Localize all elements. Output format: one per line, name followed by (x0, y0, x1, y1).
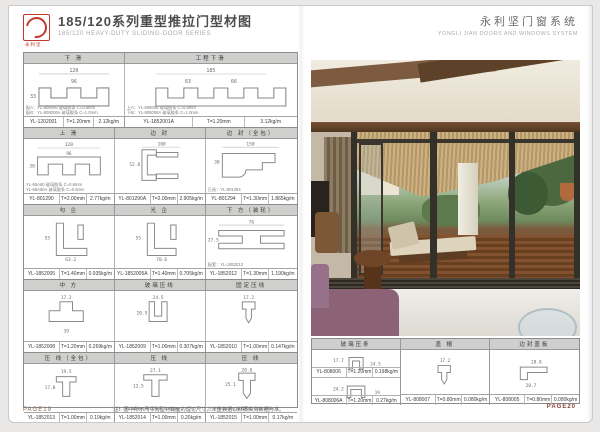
room-photo (311, 60, 581, 336)
profile-weight: 0.27kg/m (373, 396, 399, 405)
page-right: 永利坚门窗系统 YONGLI JIAN DOORS AND WINDOWS SY… (301, 6, 593, 422)
profile-table-right: 玻璃压条 盖 帽 边封盖板 17.7 24.5 YL-808006 T=1.20 (311, 338, 581, 404)
svg-text:66: 66 (231, 79, 237, 85)
band-header-cell: 玻璃压条 (312, 339, 401, 349)
profile-drawing: 20.6 25.1 注：YL-80/707 玻璃胶条 C=0.5mm (206, 364, 297, 412)
brand-title: 永利坚门窗系统 (438, 16, 578, 29)
profile-model: YL-1852005A (115, 269, 151, 279)
page-edge-shadow (587, 6, 592, 422)
page-subtitle: 185/120 HEAVY-DUTY SLIDING-DOOR SERIES (58, 31, 252, 37)
profile-weight: 0.20kg/m (178, 413, 205, 423)
profile-drawing: 17.2 (206, 291, 297, 341)
profile-drawing: 17.2 39 (24, 291, 115, 341)
profile-drawing: 150 30 已选：YL-801294 (206, 139, 297, 193)
profile-thickness: T=1.00mm (151, 413, 178, 423)
sliding-door-frame (351, 132, 357, 289)
profile-thickness: T=1.20mm (64, 117, 94, 127)
sliding-door-frame (509, 132, 515, 289)
profile-weight: 0.705kg/m (178, 269, 205, 279)
profile-model: YL-808006A (312, 396, 347, 405)
profile-drawing: 185 63 66 上A：YL-808008 玻璃胶条 C=0.8mm 下B：Y… (125, 64, 297, 116)
svg-text:27.5: 27.5 (207, 237, 218, 243)
profile-thickness: T=1.20mm (193, 117, 245, 127)
profile-column: 17.2 YL-808007 T=0.80mm 0.080kg/m (401, 350, 490, 405)
profile-thickness: T=2.00mm (60, 194, 87, 204)
profile-model: YL-1852012 (206, 269, 242, 279)
profile-model: YL-801290A (115, 194, 151, 204)
profile-weight: 0.307kg/m (178, 342, 205, 352)
band-header-cell: 中 方 (24, 280, 115, 290)
profile-drawing: 120 96 33 配A：YL-808006 玻璃胶条 C=0.8mm 配B：Y… (24, 64, 125, 116)
logo-label: 永利坚 (25, 42, 42, 48)
svg-text:30: 30 (29, 164, 35, 170)
svg-text:76: 76 (248, 219, 254, 225)
svg-text:28.8: 28.8 (531, 360, 542, 366)
svg-text:63: 63 (185, 79, 191, 85)
band-header-cell: 压 线 (115, 353, 206, 363)
svg-text:17.7: 17.7 (333, 358, 344, 364)
page-number-left: PAGE19 (23, 407, 52, 413)
page-left: 永利坚 185/120系列重型推拉门型材图 185/120 HEAVY-DUTY… (9, 6, 301, 422)
svg-text:185: 185 (206, 68, 215, 74)
profile-column: 17.7 24.5 YL-808006 T=1.20mm 0.198kg/m 2… (312, 350, 401, 405)
profile-drawing: 76 27.5 配套：YL-1852012 (206, 216, 297, 268)
profile-model: YL-808007 (401, 395, 436, 405)
profile-thickness: T=1.30mm (242, 194, 269, 204)
svg-text:24.2: 24.2 (333, 386, 344, 392)
wood-drum-table (315, 212, 339, 253)
drawing-notes: 配A：YL-808006 玻璃胶条 C=0.8mm 配B：YL-808006A … (26, 105, 98, 115)
spread-spine (298, 6, 304, 422)
page-number-right: PAGE20 (547, 404, 576, 410)
profile-weight: 0.17kg/m (269, 413, 296, 423)
svg-text:100: 100 (157, 141, 165, 147)
profile-model: YL-808005 (490, 395, 526, 405)
svg-text:39: 39 (64, 328, 70, 334)
profile-thickness: T=1.20mm (347, 368, 373, 377)
catalog-spread: 永利坚 185/120系列重型推拉门型材图 185/120 HEAVY-DUTY… (0, 0, 600, 432)
profile-weight: 1.190kg/m (269, 269, 296, 279)
band-header-cell: 压 线 (206, 353, 297, 363)
band-beads: 中 方 玻璃压线 固定压线 17.2 39 24.5 (24, 280, 297, 353)
catalog-pages: 永利坚 185/120系列重型推拉门型材图 185/120 HEAVY-DUTY… (8, 5, 593, 423)
profile-thickness: T=1.40mm (151, 269, 178, 279)
svg-text:27.1: 27.1 (150, 368, 161, 374)
profile-model: YL-1852005 (24, 269, 60, 279)
profile-thickness: T=1.20mm (60, 342, 87, 352)
profile-drawing: 17.7 24.5 YL-808006 T=1.20mm 0.198kg/m (312, 350, 400, 378)
profile-drawing: 24.2 19 YL-808006A T=1.20mm 0.27kg/m (312, 378, 400, 406)
svg-text:20.6: 20.6 (241, 367, 252, 373)
profile-weight: 2.77kg/m (87, 194, 114, 204)
svg-text:19.5: 19.5 (61, 369, 72, 375)
svg-text:55: 55 (45, 235, 51, 241)
veranda-pillar (458, 163, 478, 246)
profile-thickness: T=1.20mm (347, 396, 373, 405)
profile-column: 28.8 20.7 YL-808005 T=0.80mm 0.080kg/m (490, 350, 579, 405)
profile-model: YL-801290 (24, 194, 60, 204)
band-header-cell: 下 滑 (24, 53, 125, 63)
svg-text:55: 55 (135, 235, 141, 241)
svg-text:70.6: 70.6 (156, 257, 167, 263)
profile-model: YL-1852013 (24, 413, 60, 423)
brand-logo: 永利坚 (23, 14, 50, 41)
svg-text:63.2: 63.2 (65, 257, 76, 263)
drawing-notes: 配套：YL-1852012 (208, 262, 243, 267)
profile-model: YL-1852015 (206, 413, 242, 423)
stool-leg (364, 264, 380, 289)
profile-weight: 0.269kg/m (87, 342, 114, 352)
band-header-cell: 下 方（装轮） (206, 205, 297, 215)
profile-weight: 2.905kg/m (178, 194, 205, 204)
drawing-notes: YL-65A60 玻璃胶条 C=0.8mm YL-65A60A 玻璃胶条 C=0… (26, 182, 85, 192)
wood-stool (354, 250, 392, 267)
profile-thickness: T=1.00mm (60, 413, 87, 423)
profile-thickness: T=1.00mm (151, 342, 178, 352)
profile-model: YL-1852014 (115, 413, 151, 423)
bottom-note: 注：图中所示尺寸为型材截面的理论尺寸，米重数据以材质实测数据为准。 (113, 406, 284, 413)
band-header-cell: 上 滑 (24, 128, 115, 138)
profile-weight: 0.147kg/m (269, 342, 296, 352)
svg-text:17.2: 17.2 (439, 358, 450, 364)
svg-text:20.7: 20.7 (525, 383, 536, 389)
left-header: 永利坚 185/120系列重型推拉门型材图 185/120 HEAVY-DUTY… (23, 14, 252, 50)
profile-weight: 0.080kg/m (462, 395, 488, 405)
svg-text:17.2: 17.2 (61, 295, 72, 301)
svg-text:24.5: 24.5 (153, 295, 164, 301)
svg-text:96: 96 (71, 79, 77, 85)
profile-thickness: T=0.80mm (436, 395, 462, 405)
profile-drawing: 19.5 17.8 (24, 364, 115, 412)
band-top-track: 上 滑 边 封 边 封（全包） 120 96 30 (24, 128, 297, 205)
profile-model: YL-1852001A (125, 117, 194, 127)
profile-model: YL-1202001 (24, 117, 64, 127)
right-header: 永利坚门窗系统 YONGLI JIAN DOORS AND WINDOWS SY… (438, 16, 578, 37)
svg-text:17.8: 17.8 (45, 385, 56, 391)
band-header-cell: 玻璃压线 (115, 280, 206, 290)
sliding-door-frame (430, 132, 436, 289)
drawing-notes: 已选：YL-801294 (208, 187, 241, 192)
profile-model: YL-801294 (206, 194, 242, 204)
profile-drawing: 55 63.2 (24, 216, 115, 268)
profile-weight: 0.19kg/m (87, 413, 114, 423)
svg-text:96: 96 (66, 151, 72, 157)
profile-weight: 2.12kg/m (94, 117, 124, 127)
profile-thickness: T=1.00mm (242, 342, 269, 352)
profile-weight: 0.935kg/m (87, 269, 114, 279)
svg-text:120: 120 (69, 68, 78, 74)
band-header-cell: 边封盖板 (490, 339, 579, 349)
door-top-rail (351, 139, 580, 143)
band-header-cell: 勾 企 (24, 205, 115, 215)
svg-text:33: 33 (30, 94, 36, 100)
page-title: 185/120系列重型推拉门型材图 (58, 14, 252, 29)
profile-drawing: 28.8 20.7 (490, 350, 579, 395)
band-bottom-track: 下 滑 工程下滑 120 96 33 配A：YL-808006 玻璃胶条 (24, 53, 297, 128)
profile-drawing: 17.2 (401, 350, 489, 395)
svg-text:30: 30 (214, 160, 220, 166)
svg-text:25.1: 25.1 (225, 382, 236, 388)
brand-subtitle: YONGLI JIAN DOORS AND WINDOWS SYSTEM (438, 31, 578, 37)
drawing-notes: 上A：YL-808008 玻璃胶条 C=0.8mm 下B：YL-808008A … (127, 105, 199, 115)
svg-text:12.5: 12.5 (133, 383, 144, 389)
profile-drawing: 55 70.6 (115, 216, 206, 268)
svg-text:120: 120 (65, 142, 73, 148)
band-stiles: 勾 企 光 企 下 方（装轮） 55 63.2 (24, 205, 297, 280)
band-header-cell: 盖 帽 (401, 339, 490, 349)
profile-thickness: T=1.00mm (242, 413, 269, 423)
profile-model: YL-1852009 (115, 342, 151, 352)
band-header-cell: 压 线（全包） (24, 353, 115, 363)
profile-thickness: T=1.40mm (60, 269, 87, 279)
profile-thickness: T=1.30mm (242, 269, 269, 279)
logo-swirl-icon (22, 13, 51, 42)
band-header-cell: 边 封（全包） (206, 128, 297, 138)
profile-thickness: T=2.00mm (151, 194, 178, 204)
sofa-armrest (311, 264, 330, 308)
profile-table: 下 滑 工程下滑 120 96 33 配A：YL-808006 玻璃胶条 (23, 52, 298, 408)
profile-weight: 1.865kg/m (269, 194, 296, 204)
sliding-door-frame (574, 132, 580, 289)
svg-text:20.5: 20.5 (136, 310, 147, 316)
profile-drawing: 27.1 12.5 注：YL-80/500 玻璃胶条 C=4mm (115, 364, 206, 412)
svg-text:17.2: 17.2 (243, 295, 254, 301)
profile-model: YL-1852008 (24, 342, 60, 352)
profile-weight: 3.12kg/m (245, 117, 297, 127)
svg-text:150: 150 (246, 141, 254, 147)
profile-weight: 0.198kg/m (373, 368, 399, 377)
profile-model: YL-1852010 (206, 342, 242, 352)
band-header-cell: 光 企 (115, 205, 206, 215)
svg-text:52.8: 52.8 (129, 162, 140, 168)
profile-model: YL-808006 (312, 368, 347, 377)
band-header-cell: 工程下滑 (125, 53, 297, 63)
profile-drawing: 100 52.8 (115, 139, 206, 193)
profile-drawing: 24.5 20.5 (115, 291, 206, 341)
profile-drawing: 120 96 30 YL-65A60 玻璃胶条 C=0.8mm YL-65A60… (24, 139, 115, 193)
band-header-cell: 边 封 (115, 128, 206, 138)
band-header-cell: 固定压线 (206, 280, 297, 290)
